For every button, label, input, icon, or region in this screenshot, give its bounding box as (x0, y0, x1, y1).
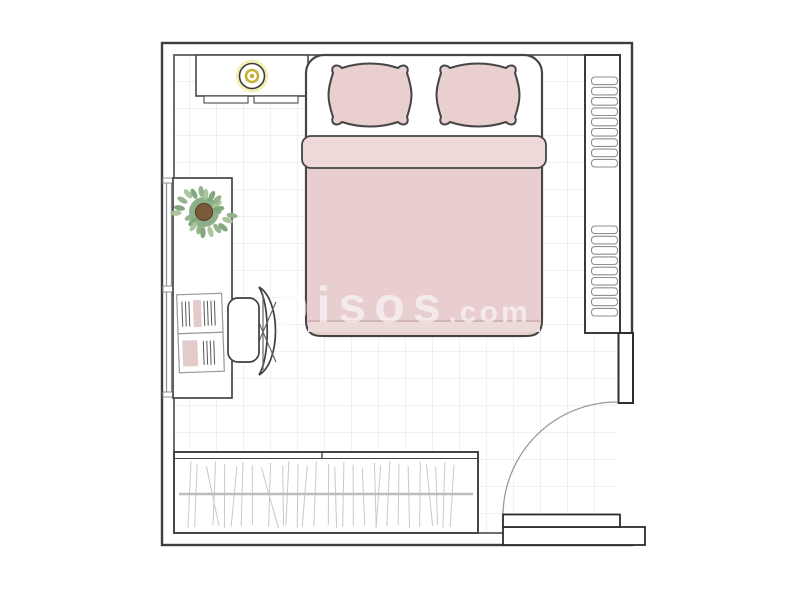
door-threshold (503, 527, 645, 545)
door-jamb (619, 333, 634, 403)
wall-shelf (585, 55, 620, 333)
floorplan-image: pisos.com (0, 0, 800, 600)
office-chair (228, 287, 276, 375)
bedroom-floorplan (0, 0, 800, 600)
chair-seat (228, 298, 259, 362)
sheet-fold (302, 136, 546, 168)
open-book (177, 293, 225, 373)
book-highlight (182, 340, 198, 367)
door-leaf (503, 515, 620, 528)
wardrobe (174, 452, 478, 533)
duvet (306, 166, 542, 336)
book-highlight (193, 300, 202, 327)
door-opening (617, 404, 651, 526)
pillow-right (437, 64, 520, 127)
pillow-left (329, 64, 412, 127)
ceiling-lamp (236, 60, 269, 93)
double-bed (302, 55, 546, 336)
